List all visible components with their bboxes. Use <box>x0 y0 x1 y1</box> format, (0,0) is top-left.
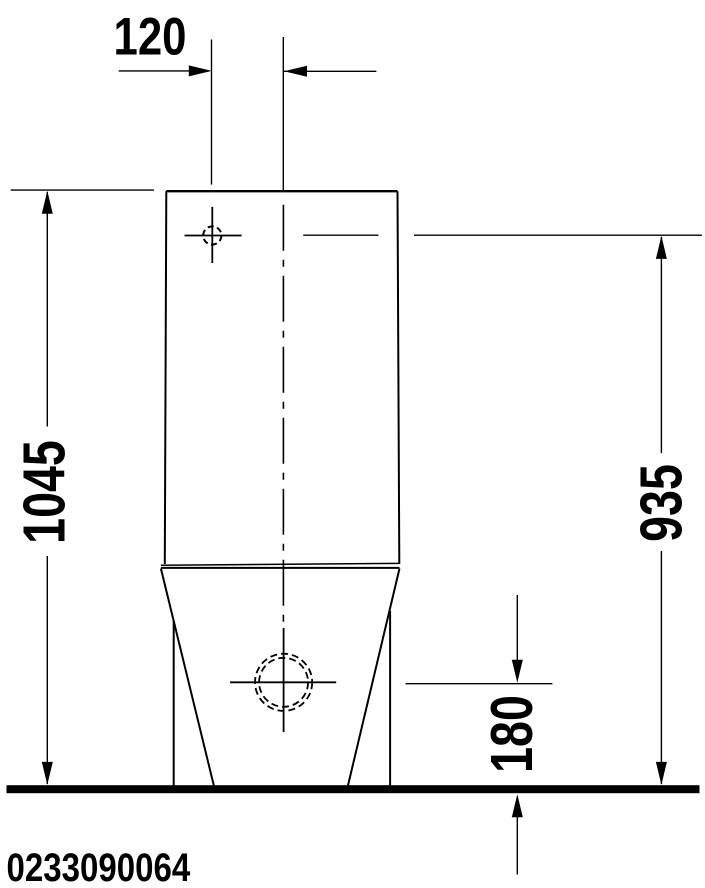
svg-text:180: 180 <box>480 695 545 773</box>
svg-text:120: 120 <box>113 7 186 66</box>
svg-text:1045: 1045 <box>12 440 77 544</box>
svg-text:0233090064: 0233090064 <box>7 845 191 888</box>
svg-text:935: 935 <box>629 464 694 542</box>
